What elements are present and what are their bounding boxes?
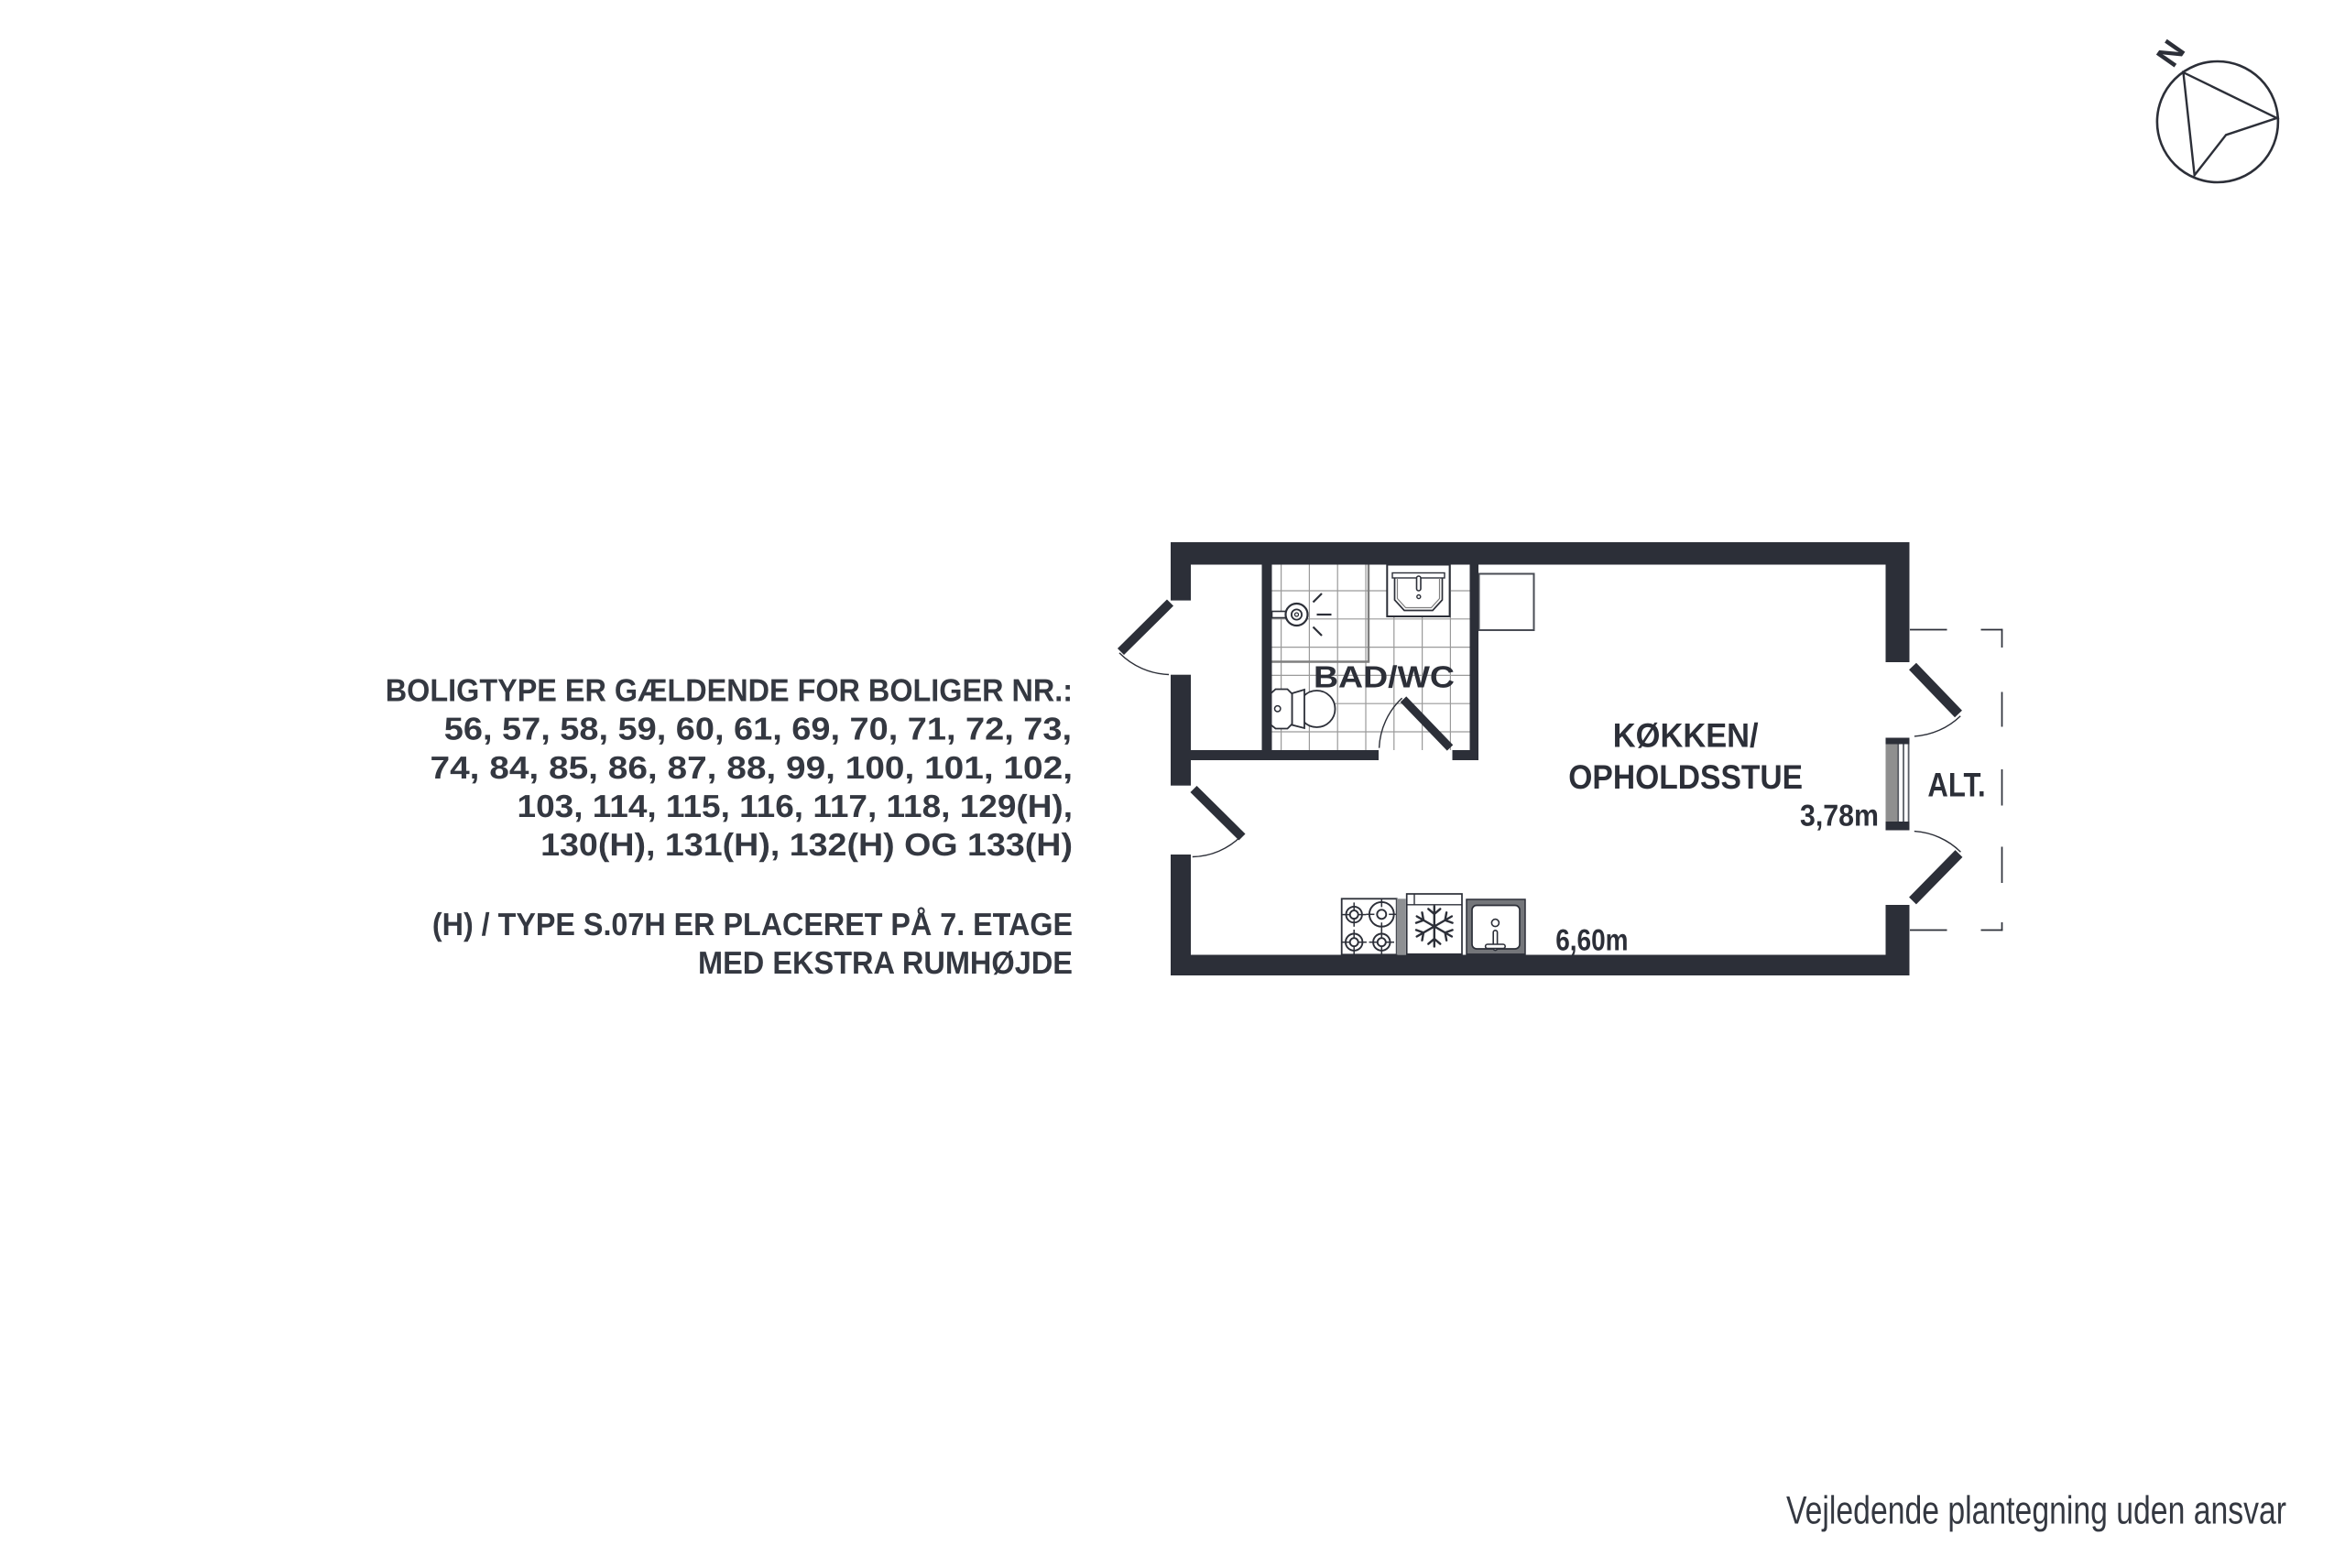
svg-text:130(H), 131(H), 132(H) OG 133(: 130(H), 131(H), 132(H) OG 133(H) [540, 828, 1073, 863]
svg-text:74, 84, 85, 86, 87, 88, 99, 10: 74, 84, 85, 86, 87, 88, 99, 100, 101, 10… [431, 751, 1074, 786]
svg-text:(H) / TYPE S.07H ER PLACERET P: (H) / TYPE S.07H ER PLACERET PÅ 7. ETAGE [432, 907, 1073, 942]
svg-text:KØKKEN/: KØKKEN/ [1613, 717, 1759, 755]
svg-text:56, 57, 58, 59, 60, 61, 69, 70: 56, 57, 58, 59, 60, 61, 69, 70, 71, 72, … [444, 713, 1072, 747]
svg-text:BAD/WC: BAD/WC [1314, 660, 1455, 694]
svg-text:N: N [2150, 34, 2192, 73]
svg-text:3,78m: 3,78m [1800, 799, 1879, 833]
svg-text:6,60m: 6,60m [1555, 923, 1628, 957]
svg-text:MED EKSTRA RUMHØJDE: MED EKSTRA RUMHØJDE [698, 946, 1073, 981]
svg-text:BOLIGTYPE ER GÆLDENDE FOR BOLI: BOLIGTYPE ER GÆLDENDE FOR BOLIGER NR.: [386, 674, 1073, 709]
svg-text:OPHOLDSSTUE: OPHOLDSSTUE [1568, 758, 1803, 796]
svg-text:ALT.: ALT. [1927, 766, 1985, 803]
svg-text:103, 114, 115, 116, 117, 118,: 103, 114, 115, 116, 117, 118, 129(H), [518, 789, 1074, 824]
svg-text:Vejledende plantegning uden an: Vejledende plantegning uden ansvar [1786, 1489, 2286, 1533]
